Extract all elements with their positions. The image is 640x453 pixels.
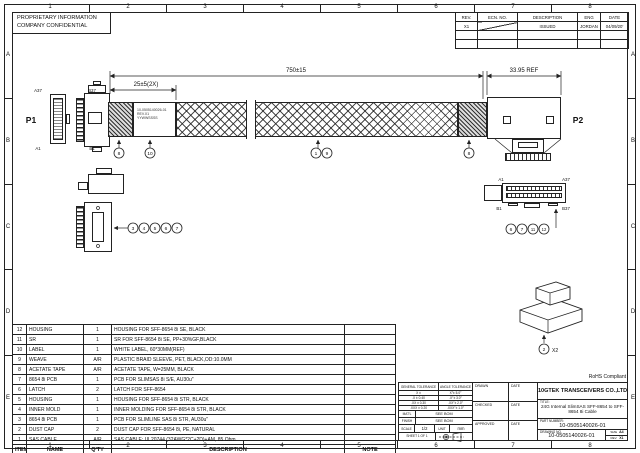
bom-name: LATCH <box>27 385 84 395</box>
projection-symbol-cell <box>436 433 473 440</box>
drawn-date-label: DATE <box>509 383 537 401</box>
checked-row: CHECKED DATE <box>473 402 538 421</box>
bom-table: 12HOUSING1HOUSING FOR SFF-8654 8i SE, BL… <box>12 324 396 453</box>
zone-row-label: D <box>629 307 637 317</box>
bom-row: 12HOUSING1HOUSING FOR SFF-8654 8i SE, BL… <box>13 325 396 335</box>
zone-tick <box>4 184 12 185</box>
braid-sleeve <box>176 102 458 137</box>
zone-col-label: 4 <box>274 3 290 11</box>
size-rev-box: SIZE A4 REV. X1 <box>605 430 627 440</box>
bom-row: 5HOUSING1HOUSING FOR SFF-8654 8i STR, BL… <box>13 395 396 405</box>
detail-side-body <box>88 174 124 194</box>
bom-item: 6 <box>13 385 27 395</box>
bom-name: INNER MOLD <box>27 405 84 415</box>
size-value: A4 <box>619 430 623 435</box>
zone-tick <box>551 4 552 12</box>
bom-qty: 1 <box>84 415 112 425</box>
cable-label: 10-0505140026-01 REV.X1 YYWWSSSS <box>133 102 176 137</box>
zone-row-label: D <box>4 307 12 317</box>
rev-value: X1 <box>619 436 623 440</box>
revision-empty-row <box>456 40 629 49</box>
checked-label: CHECKED <box>473 402 509 420</box>
approved-label: APPROVED <box>473 421 509 440</box>
bom-note <box>345 335 396 345</box>
zone-col-label: 8 <box>582 442 598 450</box>
bom-name: SR <box>27 335 84 345</box>
bom-qty: 2 <box>84 425 112 435</box>
eng-header: ENG <box>578 13 601 22</box>
bom-desc: HOUSING FOR SFF-8654 8i STR, BLACK <box>112 395 345 405</box>
detail-top-tab-right <box>548 203 558 206</box>
bom-row: 2DUST CAP2DUST CAP FOR SFF-8654 8i, PE, … <box>13 425 396 435</box>
bom-header-item: ITEM <box>13 445 27 453</box>
detail-top-pinrow-a <box>506 186 562 191</box>
title-block: GENERAL TOLERANCE ANGLE TOLERANCE X ± X°… <box>398 382 628 441</box>
bom-note <box>345 385 396 395</box>
scale-value: 1/2 <box>414 425 434 432</box>
description-value: ISSUED <box>518 22 578 31</box>
drawing-no-cell: DRAWING NO. 10-0505140026-01 SIZE A4 REV… <box>538 430 627 440</box>
title-label: TITLE: <box>540 401 550 405</box>
bom-header-qty: Q'TY <box>84 445 112 453</box>
bom-item: 11 <box>13 335 27 345</box>
drawn-row: DRAWN DATE <box>473 383 538 402</box>
drawing-sheet: 1 2 3 4 5 6 7 8 1 2 3 4 5 6 7 8 A B C D … <box>0 0 640 453</box>
bom-item: 8 <box>13 365 27 375</box>
p2-slot <box>518 142 538 148</box>
zone-col-label: 2 <box>120 3 136 11</box>
bom-note <box>345 375 396 385</box>
revision-row: X1 ISSUED JORDAN 04/09/20' <box>456 22 629 31</box>
bom-note <box>345 405 396 415</box>
detail-side-latch <box>96 168 112 174</box>
bom-desc: ACETATE TAPE, W=25MM, BLACK <box>112 365 345 375</box>
date-value: 04/09/20' <box>601 22 629 31</box>
zone-tick <box>397 4 398 12</box>
bom-desc: WHITE LABEL, 60*30MM(REF) <box>112 345 345 355</box>
bom-qty: A/R <box>84 365 112 375</box>
bom-item: 12 <box>13 325 27 335</box>
general-tolerance-header: GENERAL TOLERANCE <box>399 383 439 391</box>
zone-row-label: A <box>629 50 637 60</box>
bom-qty: 1 <box>84 395 112 405</box>
bom-row: 78654 8i PCB1PCB FOR SLIMSAS 8i S/E, AU3… <box>13 375 396 385</box>
zone-row-label: A <box>4 50 12 60</box>
sheet-cell: SHEET 1 OF 1 <box>399 433 436 440</box>
zone-col-label: 6 <box>428 442 444 450</box>
bom-name: HOUSING <box>27 325 84 335</box>
p1-latch-tab <box>93 81 101 85</box>
scale-label: SCALE <box>399 425 414 432</box>
bom-row: 11SR1SR FOR SFF-8654 8i SE, PP+30%GF,BLA… <box>13 335 396 345</box>
zone-row-label: E <box>4 393 12 403</box>
zone-tick <box>166 4 167 12</box>
proprietary-line2: COMPANY CONFIDENTIAL <box>17 23 110 31</box>
bom-desc: HOUSING FOR SFF-8654 8i SE, BLACK <box>112 325 345 335</box>
zone-row-label: B <box>4 136 12 146</box>
bom-note <box>345 355 396 365</box>
p1-body-detail <box>88 112 102 124</box>
rev-value: X1 <box>456 22 478 31</box>
bom-desc: PCB FOR SLIMLINE SAS 8i STR, AU30u" <box>112 415 345 425</box>
zone-col-label: 1 <box>42 3 58 11</box>
zone-tick <box>628 355 636 356</box>
approved-date-label: DATE <box>509 421 537 440</box>
bom-name: DUST CAP <box>27 425 84 435</box>
rev-header: REV. <box>456 13 478 22</box>
bom-desc: SR FOR SFF-8654 8i SE, PP+30%GF,BLACK <box>112 335 345 345</box>
bom-name: ACETATE TAPE <box>27 365 84 375</box>
bom-note <box>345 425 396 435</box>
finish-value: SEE BOM <box>415 418 472 424</box>
zone-col-label: 8 <box>582 3 598 11</box>
bom-row: 10LABEL1WHITE LABEL, 60*30MM(REF) <box>13 345 396 355</box>
zone-row-label: B <box>629 136 637 146</box>
finish-label: FINISH <box>399 418 415 424</box>
detail-top-cap <box>484 185 502 201</box>
bom-name: 8654 8i PCB <box>27 375 84 385</box>
bom-name: LABEL <box>27 345 84 355</box>
material-row: MAT'L SEE BOM <box>399 411 473 418</box>
bom-note <box>345 415 396 425</box>
bom-desc: PCB FOR SLIMSAS 8i S/E, AU30u" <box>112 375 345 385</box>
detail-side-stub <box>78 182 88 190</box>
p1-front-nub <box>66 114 70 124</box>
zone-col-label: 7 <box>505 3 521 11</box>
zone-row-label: E <box>629 393 637 403</box>
bom-note <box>345 325 396 335</box>
bom-name: WEAVE <box>27 355 84 365</box>
cable-label-line3: YYWWSSSS <box>137 116 175 120</box>
part-number-label: PART NUMBER: <box>540 420 564 424</box>
cable-break-symbol <box>246 100 256 139</box>
description-header: DESCRIPTION <box>518 13 578 22</box>
detail-top-bump <box>524 203 540 208</box>
zone-tick <box>89 4 90 12</box>
zone-col-label: 3 <box>197 3 213 11</box>
zone-tick <box>628 98 636 99</box>
p2-latch-hole-right <box>546 116 554 124</box>
p1-bottom-tab <box>92 147 102 152</box>
material-value: SEE BOM <box>415 411 472 417</box>
bom-qty: 1 <box>84 335 112 345</box>
zone-tick <box>320 4 321 12</box>
revision-header-row: REV. ECN. NO. DESCRIPTION ENG DATE <box>456 13 629 22</box>
bom-note <box>345 435 396 445</box>
p1-side-pin-column <box>76 98 84 142</box>
bom-item: 5 <box>13 395 27 405</box>
size-label: SIZE <box>610 430 617 435</box>
approved-row: APPROVED DATE <box>473 421 538 440</box>
title-cell: TITLE: 24G Internal SlimSAS SFF-8654 to … <box>538 400 627 419</box>
title-value: 24G Internal SlimSAS SFF-8654 to SFF-865… <box>538 400 627 415</box>
bom-row: 6LATCH2LATCH FOR SFF-8654 <box>13 385 396 395</box>
zone-row-label: C <box>4 222 12 232</box>
rev-label: REV. <box>610 436 617 440</box>
detail-front-slot <box>92 212 104 242</box>
revision-empty-row <box>456 31 629 40</box>
bom-desc: DUST CAP FOR SFF-8654 8i, PE, NATURAL <box>112 425 345 435</box>
zone-col-label: 7 <box>505 442 521 450</box>
material-label: MAT'L <box>399 411 415 417</box>
bom-header-row: ITEM NAME Q'TY DESCRIPTION NOTE <box>13 445 396 453</box>
bom-item: 4 <box>13 405 27 415</box>
zone-tick <box>397 441 398 449</box>
p2-pin-comb <box>505 153 551 161</box>
p1-front-pins <box>53 98 63 140</box>
proprietary-line1: PROPRIETARY INFORMATION <box>17 15 110 23</box>
ecn-cell-diagonal <box>478 22 518 31</box>
zone-tick <box>243 4 244 12</box>
bom-name: 8654 8i PCB <box>27 415 84 425</box>
strain-relief-left <box>108 102 133 137</box>
p2-latch-hole-left <box>503 116 511 124</box>
bom-qty: 1 <box>84 405 112 415</box>
date-header: DATE <box>601 13 629 22</box>
ecn-header: ECN. NO. <box>478 13 518 22</box>
bom-row: 9WEAVEA/RPLASTIC BRAID SLEEVE, PET, BLAC… <box>13 355 396 365</box>
bom-note <box>345 395 396 405</box>
zone-tick <box>4 355 12 356</box>
bom-qty: A/R <box>84 355 112 365</box>
zone-tick <box>474 441 475 449</box>
detail-top-tab-left <box>508 203 518 206</box>
detail-front-pin-column <box>76 206 84 248</box>
bom-item: 1 <box>13 435 27 445</box>
zone-tick <box>4 269 12 270</box>
bom-desc: PLASTIC BRAID SLEEVE, PET, BLACK,OD:10.0… <box>112 355 345 365</box>
scale-unit-row: SCALE 1/2 UNIT mm <box>399 425 473 433</box>
zone-tick <box>551 441 552 449</box>
zone-col-label: 5 <box>351 3 367 11</box>
zone-tick <box>474 4 475 12</box>
bom-name: HOUSING <box>27 395 84 405</box>
bom-desc: SAS CABLE: UL20744 (32AWG*2C+2D)+AM, 85 … <box>112 435 345 445</box>
bom-item: 3 <box>13 415 27 425</box>
finish-row: FINISH SEE BOM <box>399 418 473 425</box>
bom-item: 7 <box>13 375 27 385</box>
bom-desc: INNER MOLDING FOR SFF-8654 8i STR, BLACK <box>112 405 345 415</box>
checked-date-label: DATE <box>509 402 537 420</box>
bom-header-note: NOTE <box>345 445 396 453</box>
proprietary-note: PROPRIETARY INFORMATION COMPANY CONFIDEN… <box>12 12 111 34</box>
bom-qty: 1 <box>84 375 112 385</box>
bom-qty: 1 <box>84 345 112 355</box>
bom-row: 1SAS CABLEA/RSAS CABLE: UL20744 (32AWG*2… <box>13 435 396 445</box>
bom-note <box>345 365 396 375</box>
unit-value: mm <box>449 425 472 432</box>
detail-top-pinrow-b <box>506 193 562 198</box>
bom-row: 4INNER MOLD1INNER MOLDING FOR SFF-8654 8… <box>13 405 396 415</box>
bom-qty: 2 <box>84 385 112 395</box>
bom-qty: 1 <box>84 325 112 335</box>
zone-tick <box>4 98 12 99</box>
bom-qty: A/R <box>84 435 112 445</box>
zone-row-label: C <box>629 222 637 232</box>
bom-row: 38654 8i PCB1PCB FOR SLIMLINE SAS 8i STR… <box>13 415 396 425</box>
bom-row: 8ACETATE TAPEA/RACETATE TAPE, W=25MM, BL… <box>13 365 396 375</box>
bom-item: 2 <box>13 425 27 435</box>
zone-col-label: 6 <box>428 3 444 11</box>
eng-value: JORDAN <box>578 22 601 31</box>
drawing-no-value: 10-0505140026-01 <box>538 434 605 439</box>
p1-latch <box>88 85 106 93</box>
zone-tick <box>628 269 636 270</box>
bom-note <box>345 345 396 355</box>
angle-tolerance-header: ANGLE TOLERANCE <box>439 383 473 391</box>
bom-item: 10 <box>13 345 27 355</box>
part-number-cell: PART NUMBER: 10-0505140026-01 <box>538 419 627 430</box>
revision-table: REV. ECN. NO. DESCRIPTION ENG DATE X1 IS… <box>455 12 629 49</box>
bom-header-description: DESCRIPTION <box>112 445 345 453</box>
company-name: 10GTEK TRANSCEIVERS CO.,LTD <box>538 383 627 400</box>
zone-tick <box>628 184 636 185</box>
acetate-tape-right <box>458 102 487 137</box>
rev-row: REV. X1 <box>606 436 627 440</box>
bom-header-name: NAME <box>27 445 84 453</box>
unit-label: UNIT <box>434 425 449 432</box>
bom-name: SAS CABLE <box>27 435 84 445</box>
bom-item: 9 <box>13 355 27 365</box>
bom-desc: LATCH FOR SFF-8654 <box>112 385 345 395</box>
drawn-label: DRAWN <box>473 383 509 401</box>
